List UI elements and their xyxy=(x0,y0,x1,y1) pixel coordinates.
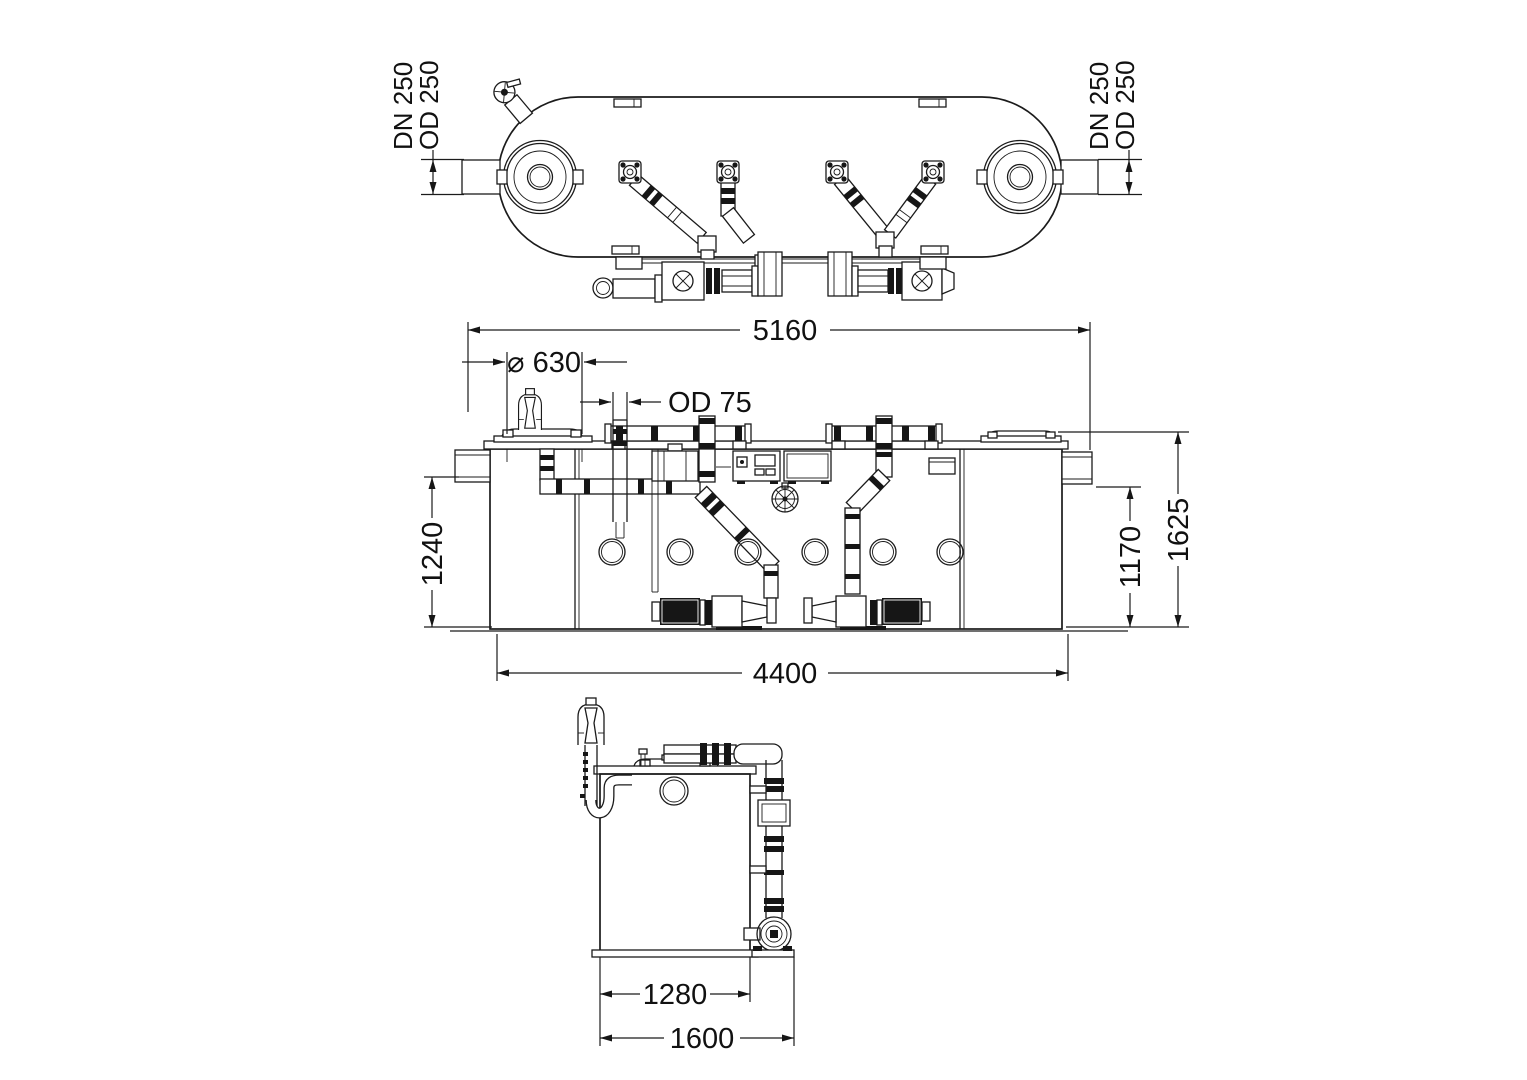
manifold-right xyxy=(826,416,942,449)
plan-inlet-od-label: OD 250 xyxy=(414,60,444,150)
outlet-height-label: 1170 xyxy=(1115,526,1147,588)
side-base-band xyxy=(592,950,758,957)
dim-overall-length: 5160 xyxy=(468,315,1090,450)
portholes xyxy=(599,539,963,565)
tank-side-outline xyxy=(600,774,750,952)
tank-length-label: 4400 xyxy=(753,658,818,690)
dim-pipe-od: OD 75 xyxy=(580,387,752,420)
manhole-cover-right xyxy=(977,141,1063,214)
side-riser-and-pump xyxy=(744,760,794,957)
internal-piping-right xyxy=(845,449,892,594)
dim-inlet-height: 1240 xyxy=(417,477,492,627)
vent-fitting-plan xyxy=(490,71,542,125)
overall-length-label: 5160 xyxy=(753,315,818,347)
nameplate xyxy=(929,458,955,474)
valve-front xyxy=(668,444,682,451)
tank-width-label: 1280 xyxy=(643,979,708,1011)
outlet-pipe-plan xyxy=(1061,160,1098,194)
discharge-piping-right xyxy=(826,161,944,257)
inlet-height-label: 1240 xyxy=(417,522,449,587)
pipe-od-label: OD 75 xyxy=(668,387,752,419)
control-panel xyxy=(733,451,831,484)
dim-outlet-height: 1170 xyxy=(1096,487,1147,627)
drawing-svg: DN 250 OD 250 DN 250 OD 250 xyxy=(0,0,1527,1080)
overall-width-label: 1600 xyxy=(670,1023,735,1055)
pump-front-right xyxy=(804,596,930,630)
front-view: 5160 ⌀ 630 OD 75 1240 xyxy=(417,315,1195,690)
inlet-pipe-front xyxy=(455,450,490,482)
outlet-pipe-front xyxy=(1062,452,1092,484)
technical-drawing-canvas: DN 250 OD 250 DN 250 OD 250 xyxy=(0,0,1527,1080)
cover-diameter-label: ⌀ 630 xyxy=(507,347,581,379)
side-cover-band xyxy=(594,766,756,774)
plan-outlet-od-label: OD 250 xyxy=(1110,60,1140,150)
dim-plan-inlet: DN 250 OD 250 xyxy=(388,60,464,194)
side-face-opening xyxy=(660,777,688,805)
side-vent-assembly xyxy=(578,698,632,813)
access-cover-right xyxy=(981,431,1061,442)
pump-front-left xyxy=(652,596,776,630)
discharge-piping-left xyxy=(619,161,754,259)
dim-tank-length: 4400 xyxy=(497,634,1068,690)
overall-height-label: 1625 xyxy=(1163,498,1195,563)
manhole-cover-left xyxy=(497,141,583,214)
plan-view: DN 250 OD 250 DN 250 OD 250 xyxy=(388,60,1142,302)
dim-cover-diameter: ⌀ 630 xyxy=(462,347,627,434)
side-view: 1280 1600 xyxy=(578,698,794,1055)
side-top-piping xyxy=(664,743,782,765)
gauge-dial xyxy=(772,483,798,512)
vent-valve-front xyxy=(519,389,542,430)
inlet-pipe-plan xyxy=(462,160,500,194)
